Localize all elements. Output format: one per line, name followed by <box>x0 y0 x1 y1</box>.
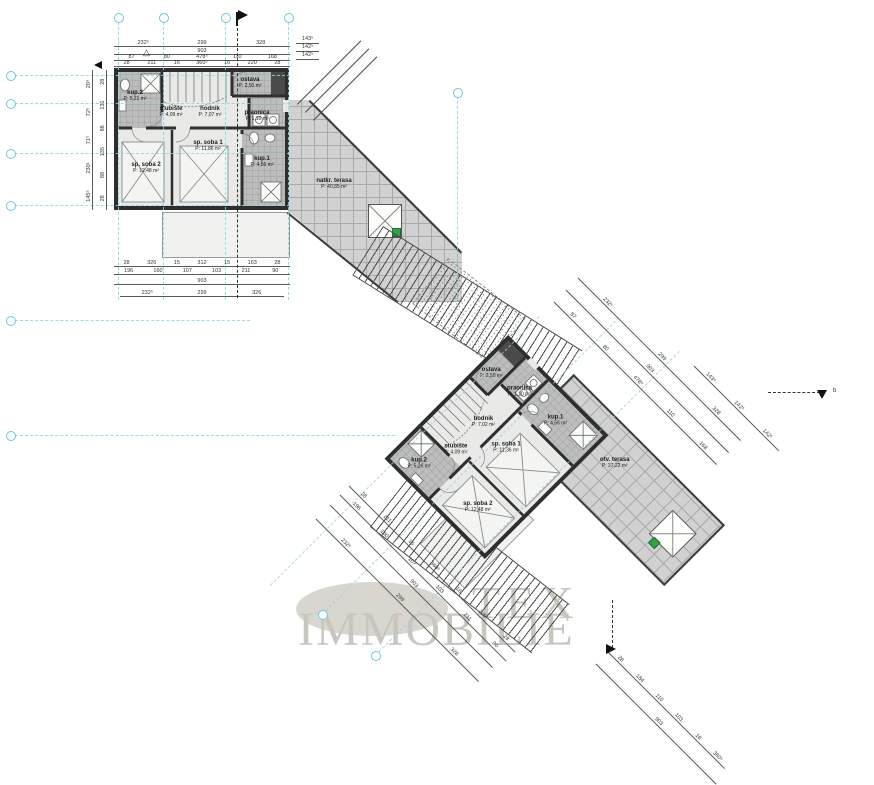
room-label-kup2: kup.2P: 5,21 m² <box>120 90 150 102</box>
dimension-chain: 2818411010316360⁵ <box>608 646 731 769</box>
north-flag-icon <box>238 10 248 20</box>
grid-marker <box>221 13 231 23</box>
section-arrow-icon <box>94 61 102 69</box>
room-label-praonica: praonicaP: 1,10 m² <box>240 110 274 122</box>
grid-line <box>10 320 250 321</box>
dimension-chain: 2821116360⁵1622028 <box>114 58 290 67</box>
grid-line <box>10 153 290 154</box>
grid-marker <box>6 316 16 326</box>
grid-marker <box>159 13 169 23</box>
room-label-hodnik: hodnikP: 7,02 m² <box>467 416 499 428</box>
section-b-label: b <box>833 388 836 394</box>
room-label-kup1: kup.1P: 4,56 m² <box>540 414 572 426</box>
dimension-chain: 28881358813128 <box>98 70 107 210</box>
room-label-hodnik: hodnikP: 7,07 m² <box>194 106 226 118</box>
roof-line <box>313 56 377 120</box>
section-line-c <box>612 600 613 648</box>
grid-marker <box>114 13 124 23</box>
grid-marker <box>6 201 16 211</box>
room-label-praonica: praonicaP: 1,10 m² <box>502 385 536 397</box>
dimension-stack: 143⁵142⁵142⁵ <box>296 36 319 60</box>
terrace-b-area: P: 37,22 m² <box>583 463 647 469</box>
dimension-chain: 145⁵230¹71⁵72⁵20⁹ <box>84 70 93 210</box>
grid-marker <box>371 651 381 661</box>
floor-plan-canvas: { "watermark": { "word1": "TEX", "word2"… <box>0 0 874 740</box>
room-label-spsoba2: sp. soba 2P: 12,48 m² <box>456 501 500 513</box>
grid-marker <box>453 88 463 98</box>
dimension-chain: 903 <box>596 658 723 785</box>
grid-marker <box>6 149 16 159</box>
grid-line <box>10 435 395 436</box>
dimension-chain: 903 <box>114 276 290 285</box>
section-c-arrow-icon <box>606 644 616 654</box>
dimension-chain: 232⁵299326 <box>120 288 284 297</box>
skylight-b <box>649 510 697 558</box>
terrace-a-area: P: 40,85 m² <box>302 184 366 190</box>
canopy-a-outline <box>162 212 290 258</box>
grid-marker <box>318 610 328 620</box>
grid-line <box>457 96 458 300</box>
entry-marker-icon: △ <box>143 48 150 57</box>
dimension-chain: 19616010710321190 <box>114 266 290 275</box>
grid-line <box>10 75 290 76</box>
room-label-kup1: kup.1P: 4,56 m² <box>246 156 278 168</box>
room-label-spsoba1: sp. soba 1P: 11,36 m² <box>484 441 528 453</box>
section-line-a <box>237 28 238 298</box>
grid-marker <box>284 13 294 23</box>
grid-line <box>10 205 290 206</box>
room-label-kup2: kup.2P: 5,26 m² <box>404 458 434 470</box>
room-label-stubiste: stubišteP: 4,09 m² <box>439 443 473 455</box>
section-line-b <box>768 392 820 393</box>
grid-marker <box>6 431 16 441</box>
room-label-spsoba1: sp. soba 1P: 11,86 m² <box>186 140 230 152</box>
unit-a-floorplan: kup.2P: 5,21 m²stubišteP: 4,09 m²hodnikP… <box>114 68 289 210</box>
grid-line <box>10 103 290 104</box>
section-b-arrow-icon <box>817 390 827 399</box>
grid-marker <box>6 71 16 81</box>
grid-marker <box>6 99 16 109</box>
room-label-ostava: ostavaP: 2,50 m² <box>234 77 266 89</box>
room-label-spsoba2: sp. soba 2P: 12,48 m² <box>124 162 168 174</box>
room-label-stubiste: stubišteP: 4,09 m² <box>154 106 188 118</box>
